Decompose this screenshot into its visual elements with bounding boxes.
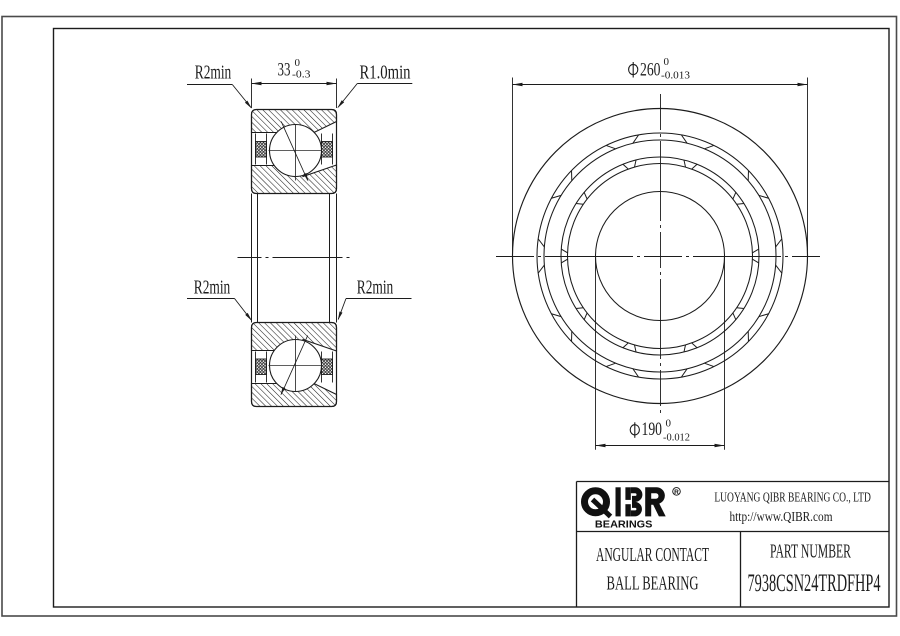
- svg-text:0: 0: [666, 418, 672, 430]
- svg-text:BEARINGS: BEARINGS: [595, 519, 653, 531]
- svg-text:0: 0: [664, 56, 670, 68]
- svg-text:R2min: R2min: [357, 277, 394, 299]
- svg-text:-0.013: -0.013: [661, 70, 691, 82]
- svg-text:190: 190: [642, 419, 663, 440]
- svg-text:R: R: [674, 489, 679, 496]
- svg-text:R2min: R2min: [194, 277, 231, 299]
- svg-text:260: 260: [640, 60, 661, 81]
- svg-text:ANGULAR CONTACT: ANGULAR CONTACT: [596, 544, 709, 566]
- svg-text:LUOYANG QIBR BEARING CO., LTD: LUOYANG QIBR BEARING CO., LTD: [714, 491, 871, 506]
- svg-text:BALL BEARING: BALL BEARING: [607, 573, 699, 595]
- svg-text:-0.012: -0.012: [663, 432, 690, 444]
- svg-text:0: 0: [295, 57, 301, 69]
- svg-text:-0.3: -0.3: [292, 69, 311, 81]
- svg-text:R1.0min: R1.0min: [360, 62, 411, 84]
- svg-text:http://www.QIBR.com: http://www.QIBR.com: [730, 510, 833, 525]
- svg-text:PART NUMBER: PART NUMBER: [770, 542, 851, 563]
- svg-text:7938CSN24TRDFHP4: 7938CSN24TRDFHP4: [748, 568, 881, 597]
- svg-text:R2min: R2min: [195, 62, 232, 84]
- svg-text:33: 33: [278, 61, 291, 81]
